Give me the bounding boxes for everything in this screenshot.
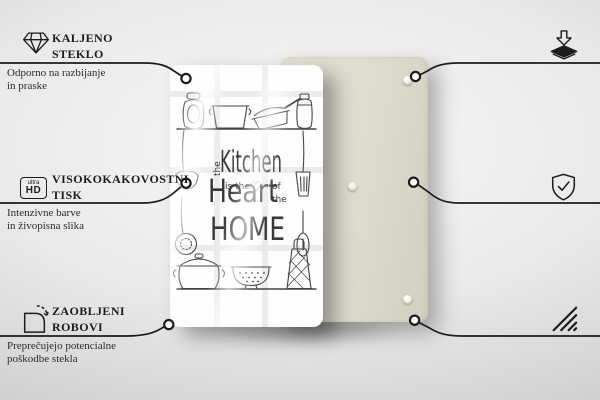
quote-text: the Kitchen is the ♡ of Heart the HOME [208,145,287,248]
spatula-doodle [296,131,310,196]
rounded-corner-icon [20,303,50,334]
grater-doodle [287,239,311,289]
skimmer-doodle [176,197,197,255]
rubber-foot [403,295,412,304]
rubber-foot [348,182,357,191]
pot-doodle [209,106,251,128]
product-infographic: { "colors": { "connector_line": "#1c1c1c… [0,0,600,400]
shield-check-icon [550,172,577,202]
art-heart: Heart [208,172,278,210]
anti-slip-pads-icon [549,29,579,61]
art-the-small: the [272,195,287,205]
callout-title: KALJENO STEKLO [52,30,113,62]
callout-description: Odporno na razbijanje in praske [7,67,105,92]
casserole-doodle [173,254,224,289]
art-home: HOME [210,210,285,248]
callout-description: Intenzivne barve in živopisna slika [7,207,84,232]
connector-top-right [420,63,600,75]
rubber-foot [403,76,412,85]
polished-edges-icon [550,304,578,332]
ultra-hd-icon: ultra HD [20,177,47,199]
glass-front-panel: the Kitchen is the ♡ of Heart the HOME [170,65,323,327]
diamond-icon [22,30,50,56]
colander-doodle [231,267,271,289]
callout-title: VISOKOKAKOVOSTNI TISK [52,171,189,203]
callout-description: Preprečujejo potencialne poškodbe stekla [7,340,116,365]
callout-title: ZAOBLJENI ROBOVI [52,303,125,335]
kitchen-artwork: the Kitchen is the ♡ of Heart the HOME [170,65,323,327]
jar-doodle [183,93,204,129]
pan-doodle [250,99,304,131]
